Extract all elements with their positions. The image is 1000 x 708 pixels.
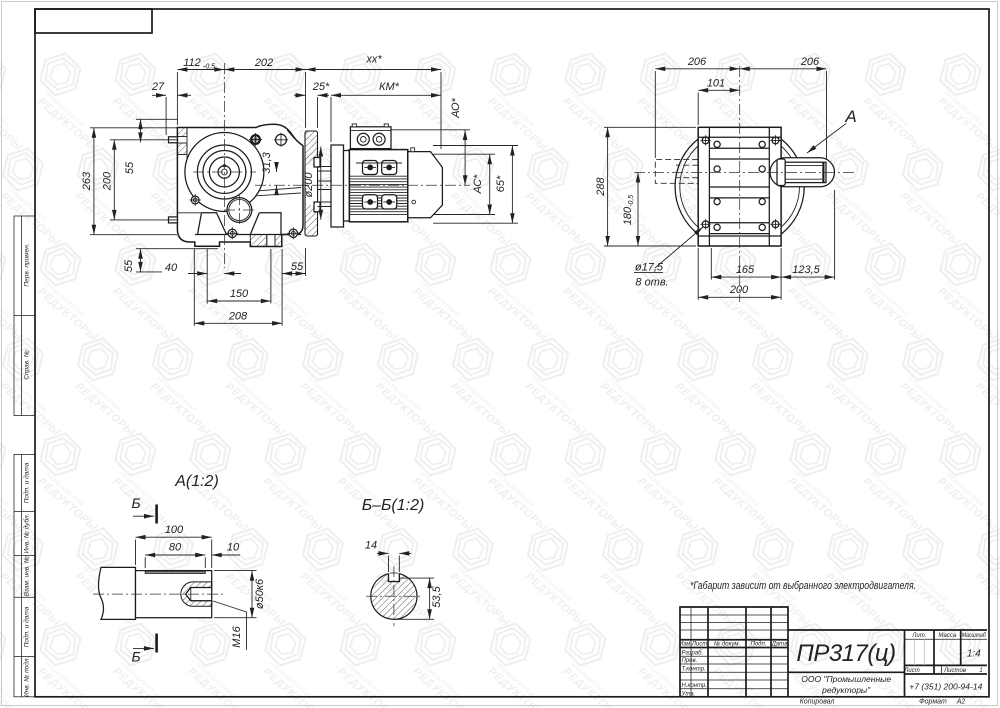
svg-text:Масса: Масса: [938, 633, 956, 639]
svg-text:Дата: Дата: [771, 642, 788, 648]
svg-text:Листов: Листов: [943, 668, 966, 674]
svg-text:101: 101: [707, 78, 725, 90]
svg-text:Лист: Лист: [903, 668, 919, 674]
svg-text:Копировал: Копировал: [800, 699, 835, 706]
svg-text:Б–Б(1:2): Б–Б(1:2): [362, 497, 425, 514]
svg-text:А: А: [844, 107, 856, 126]
svg-text:Пров.: Пров.: [682, 658, 698, 664]
svg-text:40: 40: [165, 262, 178, 274]
svg-text:27: 27: [151, 81, 165, 93]
svg-text:Разраб.: Разраб.: [682, 650, 704, 656]
svg-text:Лит.: Лит.: [911, 633, 926, 639]
svg-text:Подп.: Подп.: [751, 642, 767, 648]
svg-text:Инв. № дубл.: Инв. № дубл.: [23, 513, 31, 553]
svg-text:ООО "Промышленные: ООО "Промышленные: [801, 674, 891, 684]
svg-text:80: 80: [169, 542, 182, 554]
svg-text:-0,5: -0,5: [203, 64, 215, 71]
svg-text:8 отв.: 8 отв.: [635, 277, 668, 289]
svg-text:14: 14: [365, 540, 377, 552]
svg-text:КМ*: КМ*: [379, 81, 400, 93]
svg-text:ø17,5: ø17,5: [635, 262, 664, 274]
svg-text:202: 202: [254, 57, 273, 69]
svg-text:55: 55: [291, 261, 304, 273]
svg-text:55: 55: [124, 161, 136, 174]
svg-text:206: 206: [800, 56, 820, 68]
svg-text:ø200: ø200: [303, 172, 315, 198]
svg-text:А(1:2): А(1:2): [174, 473, 219, 490]
svg-text:1:4: 1:4: [967, 649, 981, 660]
svg-text:53,5: 53,5: [431, 585, 443, 607]
svg-text:АО*: АО*: [450, 98, 462, 119]
svg-text:Утв.: Утв.: [681, 691, 696, 697]
svg-text:288: 288: [595, 176, 607, 196]
svg-text:М16: М16: [231, 625, 243, 647]
svg-text:65*: 65*: [495, 175, 507, 192]
svg-text:*Габарит зависит от выбранного: *Габарит зависит от выбранного электродв…: [690, 580, 916, 592]
svg-text:редукторы": редукторы": [821, 685, 871, 695]
svg-text:Б: Б: [131, 495, 140, 511]
svg-text:Инв. № подл.: Инв. № подл.: [23, 656, 31, 697]
svg-text:Подп. и дата: Подп. и дата: [23, 606, 31, 647]
svg-text:Справ. №: Справ. №: [24, 350, 31, 380]
svg-text:А2: А2: [956, 699, 966, 706]
svg-text:АС*: АС*: [472, 174, 484, 195]
svg-text:Перв. примен.: Перв. примен.: [24, 243, 31, 286]
svg-text:31,3: 31,3: [261, 151, 273, 173]
svg-text:ПР317(ц): ПР317(ц): [796, 640, 895, 667]
svg-text:206: 206: [687, 56, 707, 68]
svg-text:Изм.: Изм.: [679, 642, 692, 648]
svg-text:Формат: Формат: [919, 699, 947, 706]
svg-text:55: 55: [123, 259, 135, 272]
svg-text:1: 1: [979, 668, 982, 674]
svg-text:Т.контр.: Т.контр.: [682, 666, 706, 672]
svg-text:25*: 25*: [312, 81, 330, 93]
svg-text:10: 10: [227, 542, 240, 554]
svg-text:200: 200: [102, 171, 114, 191]
svg-text:208: 208: [228, 311, 248, 323]
svg-text:Масштаб: Масштаб: [962, 633, 987, 639]
svg-text:123,5: 123,5: [792, 264, 820, 276]
svg-text:100: 100: [165, 524, 184, 536]
svg-text:150: 150: [230, 288, 249, 300]
svg-text:Н.контр.: Н.контр.: [682, 683, 707, 689]
svg-text:№ докум.: № докум.: [714, 641, 740, 648]
svg-text:хх*: хх*: [365, 54, 382, 66]
svg-text:112: 112: [183, 57, 201, 69]
svg-text:ø50к6: ø50к6: [254, 578, 266, 609]
svg-text:Взам. инв. №: Взам. инв. №: [24, 556, 31, 596]
svg-text:200: 200: [729, 284, 749, 296]
svg-text:Подп. и дата: Подп. и дата: [23, 462, 31, 503]
svg-text:165: 165: [736, 264, 755, 276]
svg-text:Лист: Лист: [691, 642, 707, 648]
svg-text:+7 (351) 200-94-14: +7 (351) 200-94-14: [909, 682, 982, 692]
svg-text:263: 263: [81, 171, 93, 191]
svg-text:Б: Б: [131, 649, 140, 665]
